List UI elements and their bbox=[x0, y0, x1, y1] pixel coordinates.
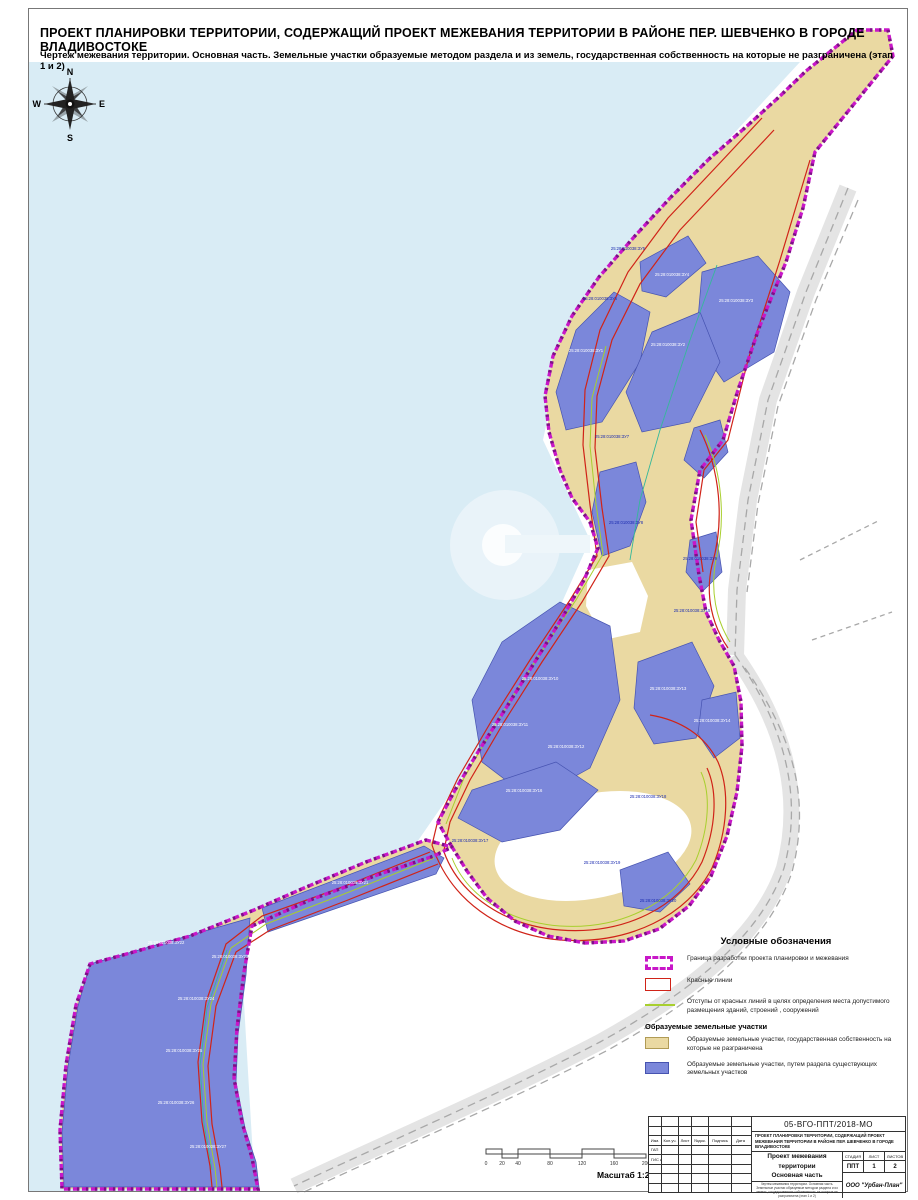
stamp-grid-cell bbox=[692, 1146, 709, 1155]
stamp-grid-cell bbox=[679, 1127, 692, 1136]
stamp-grid-cell bbox=[709, 1165, 732, 1174]
stamp-description: Чертеж межевания территории. Основная ча… bbox=[752, 1182, 842, 1199]
legend-title: Условные обозначения bbox=[645, 936, 907, 947]
stamp-grid-cell bbox=[649, 1184, 662, 1193]
legend-item-label: Образуемые земельные участки, путем разд… bbox=[687, 1061, 907, 1078]
sheets-label: ЛИСТОВ bbox=[885, 1152, 905, 1160]
scale-bar: 0204080120160200 Метры Масштаб 1:2 000 bbox=[478, 1142, 668, 1186]
legend-item: Образуемые земельные участки, государств… bbox=[645, 1036, 907, 1053]
stamp-grid-row: ГИС инж. bbox=[649, 1155, 751, 1165]
legend-item-label: Красные линии bbox=[687, 977, 732, 986]
legend-section-header: Образуемые земельные участки bbox=[645, 1022, 907, 1031]
legend-item-label: Отступы от красных линий в целях определ… bbox=[687, 998, 907, 1015]
stamp-grid-cell bbox=[732, 1174, 749, 1183]
stamp-grid-cell: Изм. bbox=[649, 1136, 662, 1145]
blue-swatch-graphic bbox=[645, 1062, 669, 1074]
stamp-grid-cell bbox=[649, 1174, 662, 1183]
scale-tick-label: 120 bbox=[578, 1161, 587, 1167]
stamp-grid-cell bbox=[649, 1165, 662, 1174]
legend: Условные обозначения Граница разработки … bbox=[645, 936, 907, 1085]
stamp-grid-cell bbox=[662, 1184, 679, 1193]
greenline-swatch bbox=[645, 999, 679, 1006]
stamp-grid-cell bbox=[692, 1155, 709, 1164]
stamp-signature-grid: Изм.Кол.уч.Лист№док.ПодписьДатаГАПГИС ин… bbox=[649, 1117, 752, 1192]
greenline-swatch-graphic bbox=[645, 1004, 675, 1006]
stamp-grid-cell bbox=[662, 1165, 679, 1174]
stamp-grid-cell bbox=[679, 1155, 692, 1164]
stamp-grid-row: Изм.Кол.уч.Лист№док.ПодписьДата bbox=[649, 1136, 751, 1146]
scale-tick-label: 80 bbox=[547, 1161, 553, 1167]
stamp-grid-cell: №док. bbox=[692, 1136, 709, 1145]
stamp-grid-cell bbox=[662, 1155, 679, 1164]
boundary-swatch bbox=[645, 956, 679, 970]
scale-tick-label: 160 bbox=[610, 1161, 619, 1167]
stamp-grid-cell bbox=[732, 1165, 749, 1174]
tan-swatch bbox=[645, 1037, 679, 1049]
stage-label: СТАДИЯ bbox=[843, 1152, 864, 1160]
stamp-grid-cell bbox=[679, 1184, 692, 1193]
stamp-grid-cell bbox=[732, 1184, 749, 1193]
stamp-grid-row bbox=[649, 1165, 751, 1175]
scale-bar-graphic: 0204080120160200 bbox=[478, 1142, 668, 1168]
stamp-grid-cell bbox=[709, 1146, 732, 1155]
stamp-grid-cell bbox=[692, 1127, 709, 1136]
stamp-role-cell: ГИС инж. bbox=[649, 1155, 662, 1164]
title-block: Изм.Кол.уч.Лист№док.ПодписьДатаГАПГИС ин… bbox=[648, 1116, 906, 1193]
stamp-grid-row bbox=[649, 1174, 751, 1184]
stamp-grid-cell: Кол.уч. bbox=[662, 1136, 679, 1145]
stamp-grid-cell bbox=[709, 1184, 732, 1193]
stamp-grid-cell: Лист bbox=[679, 1136, 692, 1145]
stamp-grid-cell bbox=[662, 1127, 679, 1136]
page-subtitle: Чертеж межевания территории. Основная ча… bbox=[40, 50, 900, 72]
legend-item: Граница разработки проекта планировки и … bbox=[645, 955, 907, 970]
legend-item-label: Образуемые земельные участки, государств… bbox=[687, 1036, 907, 1053]
stamp-grid-row bbox=[649, 1127, 751, 1137]
boundary-swatch-graphic bbox=[645, 956, 673, 970]
legend-item: Образуемые земельные участки, путем разд… bbox=[645, 1061, 907, 1078]
stamp-grid-cell bbox=[692, 1165, 709, 1174]
stamp-grid-cell bbox=[662, 1146, 679, 1155]
stamp-company: ООО "Урбан-План" bbox=[843, 1173, 905, 1198]
legend-item-label: Граница разработки проекта планировки и … bbox=[687, 955, 849, 964]
stamp-grid-cell bbox=[709, 1174, 732, 1183]
stamp-grid-cell bbox=[709, 1117, 732, 1126]
tan-swatch-graphic bbox=[645, 1037, 669, 1049]
stage-value: ППТ bbox=[843, 1161, 864, 1172]
stamp-role-cell: ГАП bbox=[649, 1146, 662, 1155]
legend-item: Отступы от красных линий в целях определ… bbox=[645, 998, 907, 1015]
stamp-sheet-title-2: Основная часть bbox=[771, 1171, 822, 1181]
stamp-grid-row bbox=[649, 1117, 751, 1127]
stamp-grid-cell bbox=[662, 1117, 679, 1126]
legend-items: Граница разработки проекта планировки и … bbox=[645, 955, 907, 1078]
scale-tick-label: 20 bbox=[499, 1161, 505, 1167]
stamp-grid-cell bbox=[692, 1174, 709, 1183]
stamp-grid-cell bbox=[732, 1117, 749, 1126]
stamp-grid-cell bbox=[709, 1127, 732, 1136]
blue-swatch bbox=[645, 1062, 679, 1074]
stamp-grid-cell bbox=[692, 1184, 709, 1193]
stamp-grid-cell bbox=[662, 1174, 679, 1183]
stamp-grid-cell bbox=[732, 1155, 749, 1164]
sheet-label: ЛИСТ bbox=[864, 1152, 885, 1160]
stamp-grid-cell: Подпись bbox=[709, 1136, 732, 1145]
stamp-grid-cell bbox=[692, 1117, 709, 1126]
stamp-grid-cell bbox=[709, 1155, 732, 1164]
stamp-grid-cell bbox=[732, 1127, 749, 1136]
stamp-grid-cell bbox=[649, 1127, 662, 1136]
stamp-grid-cell bbox=[732, 1146, 749, 1155]
stamp-grid-row bbox=[649, 1184, 751, 1193]
sheet-value: 1 bbox=[864, 1161, 885, 1172]
scale-tick-label: 0 bbox=[485, 1161, 488, 1167]
scale-ticks: 0204080120160200 bbox=[485, 1161, 651, 1167]
stamp-grid-row: ГАП bbox=[649, 1146, 751, 1156]
stamp-grid-cell: Дата bbox=[732, 1136, 749, 1145]
scale-tick-label: 40 bbox=[515, 1161, 521, 1167]
sheets-value: 2 bbox=[885, 1161, 905, 1172]
stamp-grid-cell bbox=[649, 1117, 662, 1126]
stamp-grid-cell bbox=[679, 1117, 692, 1126]
stamp-grid-cell bbox=[679, 1174, 692, 1183]
redline-swatch bbox=[645, 978, 679, 991]
stamp-grid-cell bbox=[679, 1146, 692, 1155]
stamp-doc-number: 05-ВГО-ППТ/2018-МО bbox=[752, 1117, 905, 1132]
stamp-project-name: ПРОЕКТ ПЛАНИРОВКИ ТЕРРИТОРИИ, СОДЕРЖАЩИЙ… bbox=[752, 1132, 905, 1152]
redline-swatch-graphic bbox=[645, 978, 671, 991]
legend-item: Красные линии bbox=[645, 977, 907, 991]
stamp-sheet-title-1: Проект межевания территории bbox=[752, 1152, 842, 1171]
stamp-grid-cell bbox=[679, 1165, 692, 1174]
stamp-sheet-title: Проект межевания территории Основная час… bbox=[752, 1152, 842, 1182]
drawing-sheet: 25:28:010038:ЗУ125:28:010038:ЗУ225:28:01… bbox=[0, 0, 918, 1200]
